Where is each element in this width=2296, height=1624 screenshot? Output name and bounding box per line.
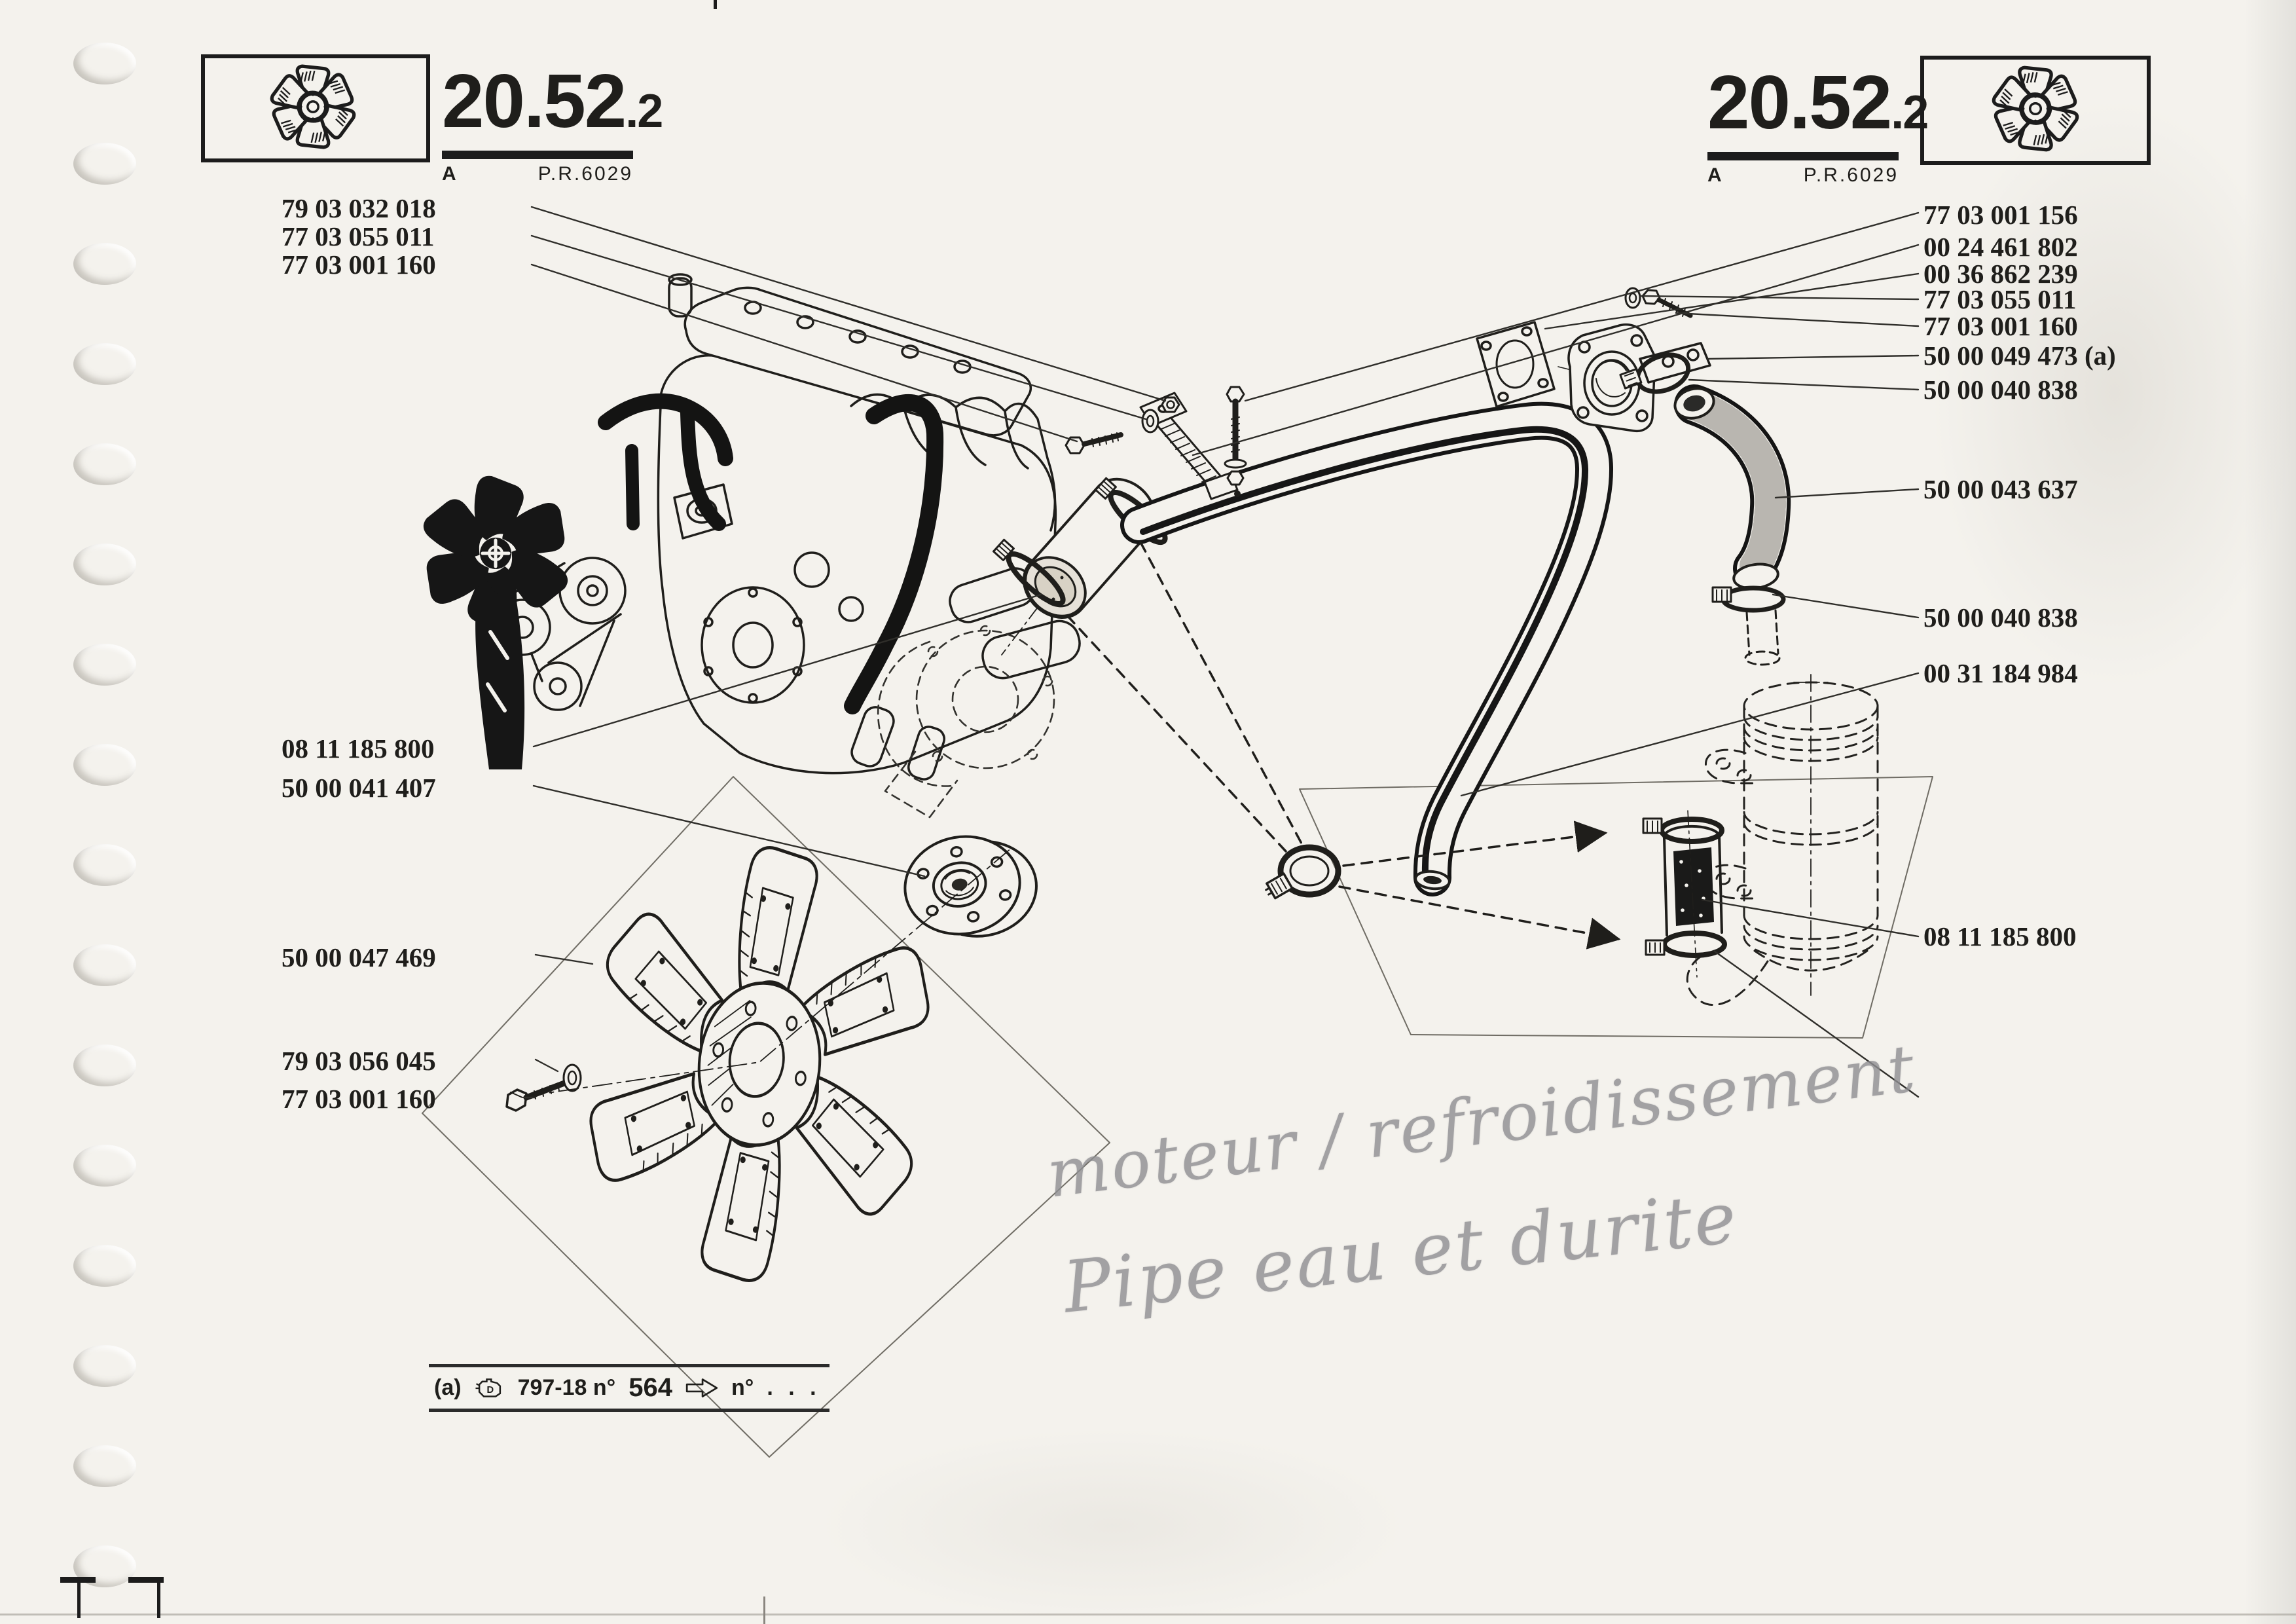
hose-clamp — [1713, 587, 1783, 610]
parts-catalog-page: 20.52.2 A P.R.6029 20.52.2 A P.R.6029 — [0, 0, 2296, 1624]
engine-illustration — [414, 274, 1084, 782]
part-number-right-11: 08 11 185 800 — [1923, 921, 2077, 952]
footnote-marker: (a) — [434, 1375, 462, 1401]
arrow-icon — [685, 1377, 718, 1399]
water-pipe-main — [1139, 387, 1594, 891]
footnote-dots: . . . — [767, 1375, 820, 1401]
fan — [566, 831, 954, 1297]
part-number-right-9: 50 00 040 838 — [1923, 602, 2078, 633]
part-number-left-2: 77 03 055 011 — [282, 221, 435, 252]
outlet-flange-assembly — [1477, 288, 1783, 665]
svg-text:D: D — [486, 1384, 494, 1395]
part-number-left-5: 50 00 041 407 — [282, 772, 436, 803]
hose-sleeve-lower — [1643, 811, 1724, 977]
fan-silhouette — [414, 476, 577, 769]
fan-hub — [897, 825, 1044, 948]
part-number-left-1: 79 03 032 018 — [282, 193, 436, 224]
part-number-right-7: 50 00 040 838 — [1923, 374, 2078, 405]
elbow-hose — [1671, 384, 1783, 665]
part-number-left-8: 77 03 001 160 — [282, 1083, 436, 1115]
part-number-right-6: 50 00 049 473 (a) — [1923, 340, 2116, 371]
part-number-left-4: 08 11 185 800 — [282, 733, 435, 764]
hose-clamp — [1646, 933, 1724, 955]
fan-bolt — [507, 1065, 581, 1111]
part-number-left-6: 50 00 047 469 — [282, 942, 436, 973]
hose-clamp-detail — [1264, 847, 1338, 900]
fastener-cluster — [1066, 397, 1179, 453]
footnote-ref: 797-18 n° — [518, 1375, 616, 1401]
engine-icon: D — [475, 1377, 505, 1399]
part-number-left-7: 79 03 056 045 — [282, 1045, 436, 1077]
part-number-right-5: 77 03 001 160 — [1923, 310, 2078, 342]
part-number-right-8: 50 00 043 637 — [1923, 473, 2078, 505]
part-number-left-3: 77 03 001 160 — [282, 249, 436, 280]
part-number-right-10: 00 31 184 984 — [1923, 657, 2078, 689]
part-number-right-1: 77 03 001 156 — [1923, 199, 2078, 231]
footnote-arrow-to: n° — [731, 1375, 754, 1401]
footnote-number: 564 — [629, 1373, 672, 1403]
footnote-bar: (a) D 797-18 n° 564 n° . . . — [429, 1364, 829, 1412]
